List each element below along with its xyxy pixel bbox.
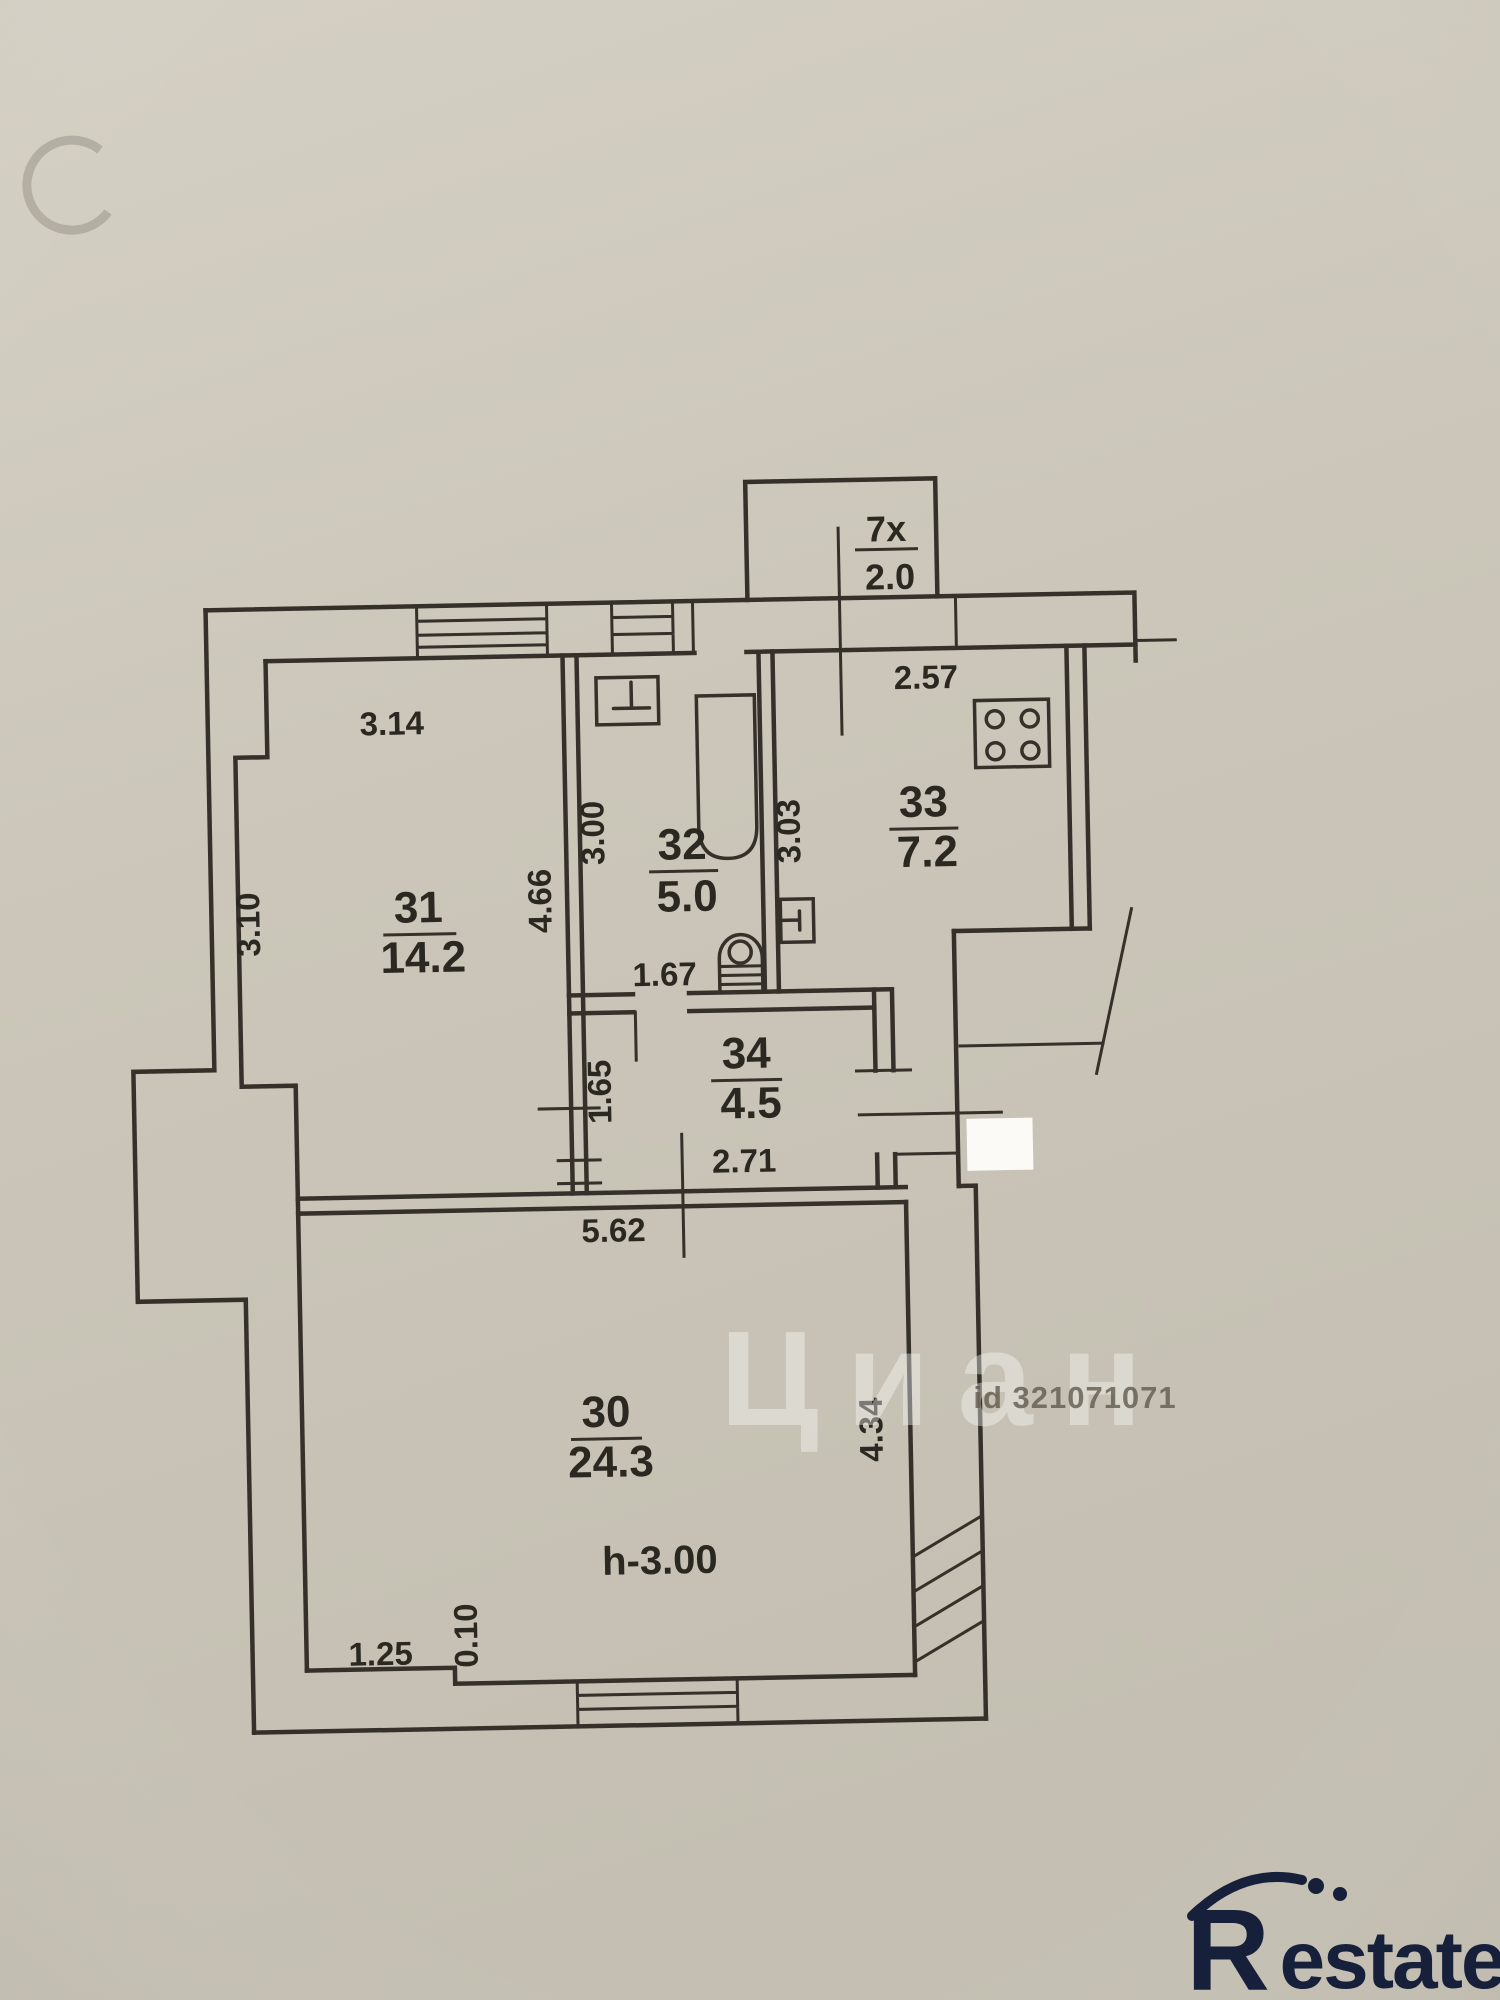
logo-text-estate: estate: [1279, 1915, 1500, 2000]
room-34-number: 34: [721, 1029, 771, 1079]
room-30-area: 24.3: [568, 1437, 655, 1488]
dim-left-room31: 3.10: [229, 892, 267, 957]
room-32-area: 5.0: [656, 872, 718, 922]
logo-letter-r: R: [1186, 1885, 1270, 2000]
dim-room30-width: 5.62: [581, 1211, 646, 1249]
room-34-area: 4.5: [720, 1078, 782, 1128]
dim-bath-bottom: 1.67: [632, 955, 697, 993]
dim-top-room31: 3.14: [359, 704, 425, 742]
logo-dot-2: [1333, 1887, 1347, 1901]
room-31-number: 31: [393, 883, 443, 933]
balcony-number: 7x: [866, 508, 907, 550]
dim-hall-width: 2.71: [712, 1142, 777, 1180]
listing-id-watermark: id 321071071: [973, 1380, 1176, 1415]
logo-dot-1: [1308, 1878, 1324, 1894]
floorplan-photo: 7x 2.0: [0, 0, 1500, 2000]
room-30-number: 30: [581, 1387, 631, 1437]
cian-watermark: Циан: [720, 1303, 1170, 1454]
paper-vignette: [0, 0, 1500, 2000]
room-33-number: 33: [898, 777, 948, 827]
room-31-area: 14.2: [380, 932, 467, 983]
room-33-area: 7.2: [896, 827, 958, 877]
dim-bath-width: 3.00: [573, 801, 611, 866]
room-32-number: 32: [657, 820, 707, 870]
dim-room30-step: 0.10: [447, 1603, 485, 1668]
bath-door-leaf: [635, 1012, 636, 1060]
balcony-area: 2.0: [865, 556, 916, 598]
dim-hall-depth: 1.65: [580, 1059, 618, 1124]
dim-room31-depth: 4.66: [521, 869, 559, 934]
ceiling-height-label: h-3.00: [602, 1538, 718, 1584]
dim-room30-niche: 1.25: [348, 1635, 413, 1673]
censor-patch: [966, 1118, 1033, 1171]
dim-kitchen-depth: 3.03: [769, 799, 807, 864]
dim-kitchen-top: 2.57: [893, 658, 958, 696]
floorplan-svg: 7x 2.0: [0, 0, 1500, 2000]
